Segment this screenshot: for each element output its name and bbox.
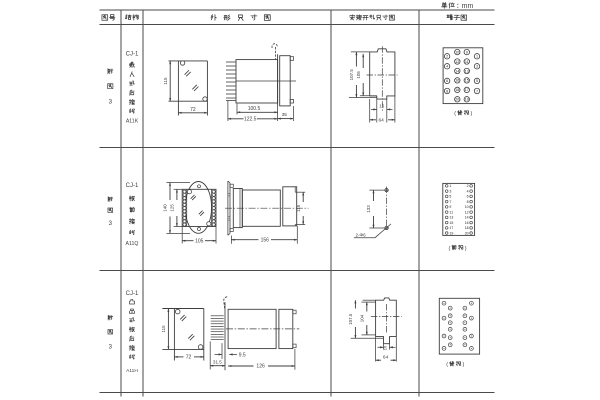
svg-text:18: 18 — [455, 88, 459, 92]
svg-text:9.5: 9.5 — [239, 352, 246, 358]
svg-text:mm: mm — [462, 3, 474, 10]
svg-text:14: 14 — [465, 216, 469, 220]
svg-text:16: 16 — [455, 79, 459, 83]
svg-text:105: 105 — [356, 71, 361, 79]
svg-text:105: 105 — [195, 238, 204, 244]
svg-text:18: 18 — [465, 226, 469, 230]
svg-text:107.5: 107.5 — [349, 69, 354, 81]
svg-text:14: 14 — [455, 69, 459, 73]
svg-text:20: 20 — [455, 98, 459, 102]
svg-text:10: 10 — [465, 205, 469, 209]
svg-text:126: 126 — [256, 364, 265, 370]
svg-text:17: 17 — [465, 88, 469, 92]
svg-text:122.5: 122.5 — [244, 116, 257, 122]
svg-text:64: 64 — [383, 354, 389, 360]
svg-text:19: 19 — [465, 98, 469, 102]
svg-text:72: 72 — [186, 354, 192, 360]
svg-text:13: 13 — [449, 216, 453, 220]
svg-text:3: 3 — [449, 189, 451, 193]
svg-text:1: 1 — [449, 184, 451, 188]
svg-text:125: 125 — [170, 204, 175, 212]
svg-text:35: 35 — [282, 112, 288, 118]
svg-text:64: 64 — [379, 117, 385, 123]
svg-text:9: 9 — [449, 205, 451, 209]
svg-text:8: 8 — [446, 89, 448, 93]
svg-text:7: 7 — [449, 200, 451, 204]
svg-text:10: 10 — [455, 50, 459, 54]
svg-text:115: 115 — [296, 204, 301, 212]
svg-text:13: 13 — [465, 69, 469, 73]
svg-text:1: 1 — [476, 55, 478, 59]
svg-text:4: 4 — [446, 65, 448, 69]
svg-text:107.5: 107.5 — [348, 313, 353, 325]
svg-text:(: ( — [446, 362, 448, 368]
svg-text:3: 3 — [476, 65, 478, 69]
svg-text:115: 115 — [161, 325, 166, 333]
svg-text:15: 15 — [449, 221, 453, 225]
svg-text:104: 104 — [359, 314, 364, 322]
svg-text:9: 9 — [466, 50, 468, 54]
svg-text:2-Φ6: 2-Φ6 — [356, 232, 367, 237]
svg-text:A11H: A11H — [126, 368, 138, 374]
svg-text:3: 3 — [109, 99, 113, 106]
svg-text:2: 2 — [467, 184, 469, 188]
svg-text:11: 11 — [465, 60, 469, 64]
svg-text:16: 16 — [465, 221, 469, 225]
svg-text:5: 5 — [476, 79, 478, 83]
svg-text:CJ-1: CJ-1 — [126, 183, 139, 189]
svg-text:140: 140 — [163, 204, 168, 212]
svg-text:8: 8 — [467, 200, 469, 204]
svg-text:): ) — [471, 111, 473, 117]
svg-text:16: 16 — [383, 345, 388, 350]
svg-text:6: 6 — [446, 79, 448, 83]
svg-text:2: 2 — [446, 55, 448, 59]
svg-text:(: ( — [454, 111, 456, 117]
svg-text:(: ( — [449, 246, 451, 252]
svg-text:16: 16 — [379, 103, 385, 108]
svg-text:17: 17 — [449, 226, 453, 230]
svg-text:CJ-1: CJ-1 — [126, 291, 139, 297]
svg-text:19: 19 — [449, 231, 453, 235]
svg-text:): ) — [463, 362, 465, 368]
svg-text:156: 156 — [261, 237, 270, 243]
svg-text:4: 4 — [467, 189, 469, 193]
svg-text:11: 11 — [449, 210, 453, 214]
svg-text:12: 12 — [455, 60, 459, 64]
svg-text:): ) — [465, 246, 467, 252]
svg-text:133: 133 — [366, 205, 371, 213]
svg-text:12: 12 — [465, 210, 469, 214]
svg-text:5: 5 — [449, 195, 451, 199]
svg-text:20: 20 — [465, 231, 469, 235]
svg-text:100.5: 100.5 — [248, 106, 261, 112]
svg-text:31.5: 31.5 — [213, 360, 222, 365]
svg-text:A11Q: A11Q — [126, 241, 139, 247]
svg-text:15: 15 — [465, 79, 469, 83]
svg-text:7: 7 — [476, 89, 478, 93]
svg-text:6: 6 — [467, 195, 469, 199]
svg-text:72: 72 — [190, 107, 196, 113]
svg-text:CJ-1: CJ-1 — [126, 52, 139, 58]
svg-text:A11K: A11K — [126, 118, 139, 124]
svg-text:115: 115 — [163, 77, 168, 85]
